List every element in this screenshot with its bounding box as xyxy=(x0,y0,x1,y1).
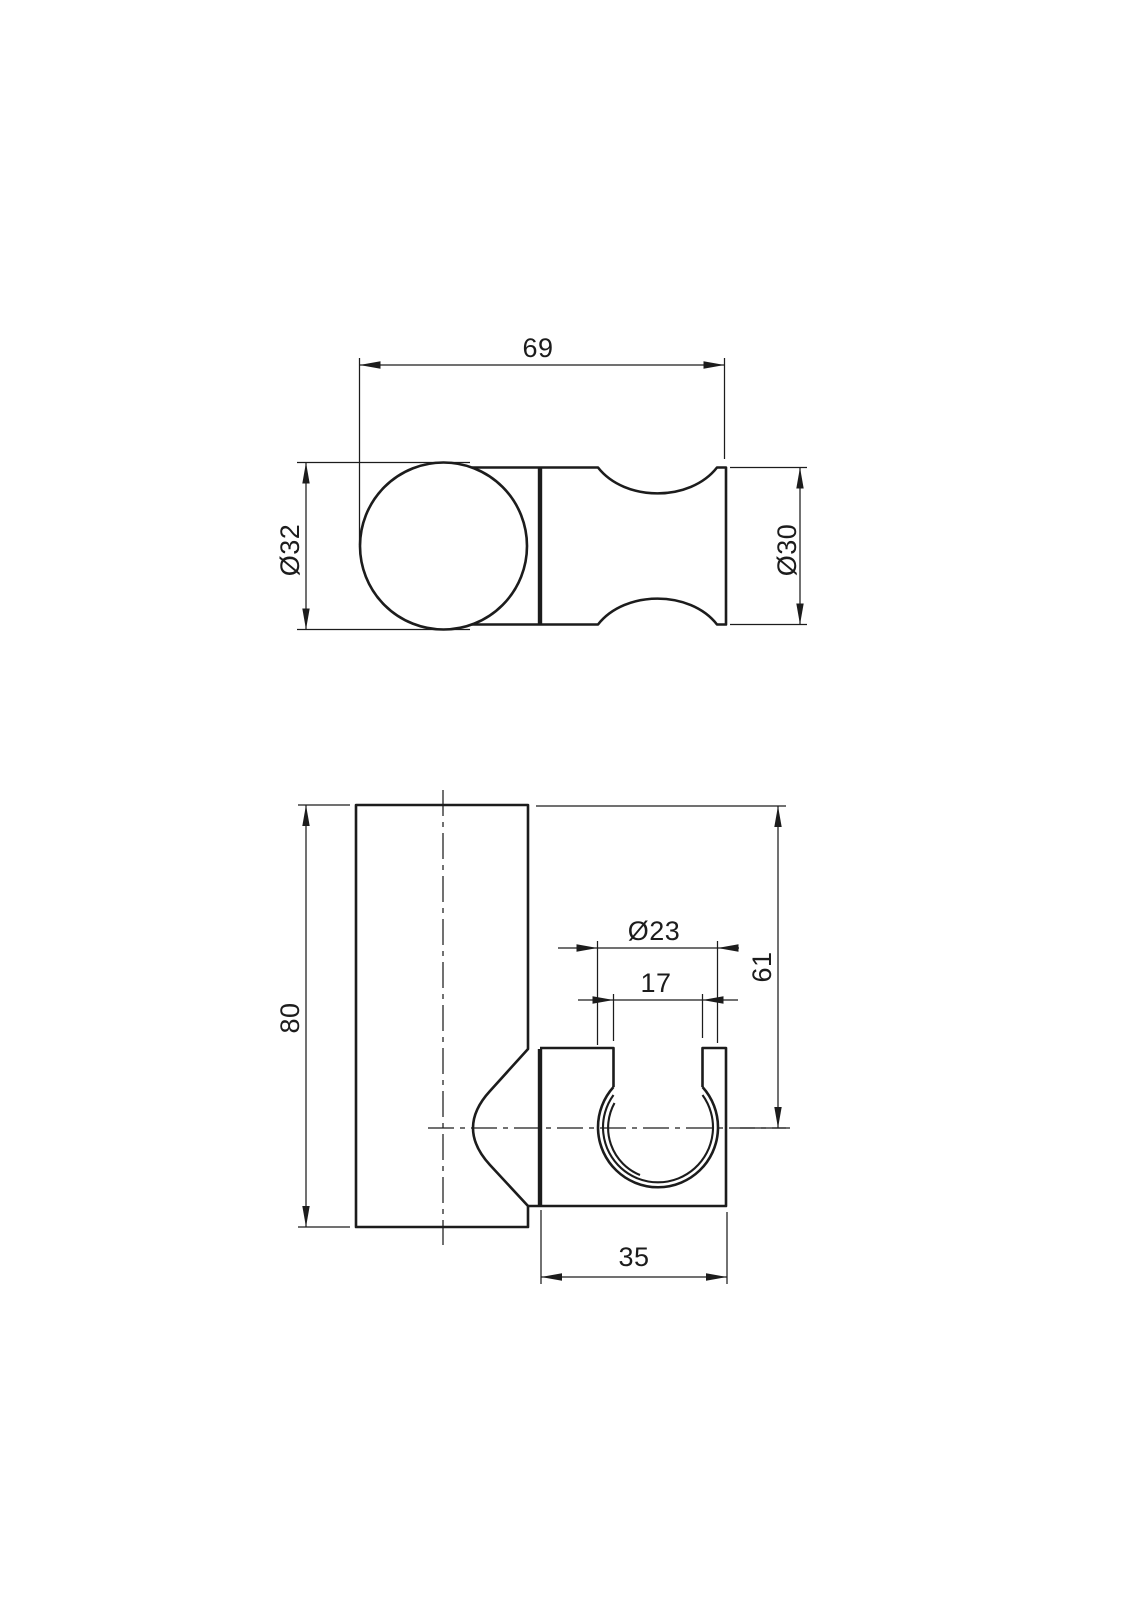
technical-drawing: 69 Ø32 Ø30 xyxy=(0,0,1141,1600)
dim-label-dia32: Ø32 xyxy=(275,524,305,577)
arrowhead-bottom xyxy=(796,604,803,625)
hole-inner-arc xyxy=(608,1103,640,1175)
arrowhead-left xyxy=(541,1273,562,1280)
top-view-body-outline xyxy=(472,468,726,625)
front-view-holder-block xyxy=(528,1048,726,1206)
dim-label-dia30: Ø30 xyxy=(772,524,802,577)
dim-label-80: 80 xyxy=(275,1002,305,1033)
dim-slot-17: 17 xyxy=(578,968,738,1041)
arrowhead-bottom xyxy=(774,1107,781,1128)
block-edges xyxy=(528,1048,726,1206)
hole-outer-arc xyxy=(598,1087,718,1187)
arrowhead-left xyxy=(577,944,598,951)
arrowhead-right xyxy=(703,996,724,1003)
arrowhead-bottom xyxy=(302,609,309,630)
dim-dia-30: Ø30 xyxy=(730,468,807,625)
arrowhead-bottom xyxy=(302,1206,309,1227)
dim-block-35: 35 xyxy=(541,1210,727,1284)
dim-label-69: 69 xyxy=(522,333,553,363)
dim-label-dia23: Ø23 xyxy=(628,916,681,946)
arrowhead-right xyxy=(706,1273,727,1280)
arrowhead-top xyxy=(302,463,309,484)
arrowhead-right xyxy=(718,944,739,951)
dim-label-35: 35 xyxy=(618,1242,649,1272)
arrowhead-top xyxy=(796,468,803,489)
front-view-body-outline xyxy=(356,805,528,1227)
front-view: 80 61 Ø23 17 xyxy=(275,790,790,1284)
arrowhead-right xyxy=(704,361,725,368)
top-view-ball-circle xyxy=(360,463,527,630)
dim-dia-32: Ø32 xyxy=(275,463,470,630)
arrowhead-left xyxy=(593,996,614,1003)
dim-height-80: 80 xyxy=(275,805,350,1227)
top-view: 69 Ø32 Ø30 xyxy=(275,333,807,630)
hole-middle-arc xyxy=(603,1095,713,1182)
arrowhead-left xyxy=(360,361,381,368)
dim-label-61: 61 xyxy=(747,951,777,982)
arrowhead-top xyxy=(774,806,781,827)
dim-center-height-61: 61 xyxy=(536,806,786,1128)
arrowhead-top xyxy=(302,805,309,826)
dim-label-17: 17 xyxy=(640,968,671,998)
drawing-sheet: 69 Ø32 Ø30 xyxy=(0,0,1141,1600)
